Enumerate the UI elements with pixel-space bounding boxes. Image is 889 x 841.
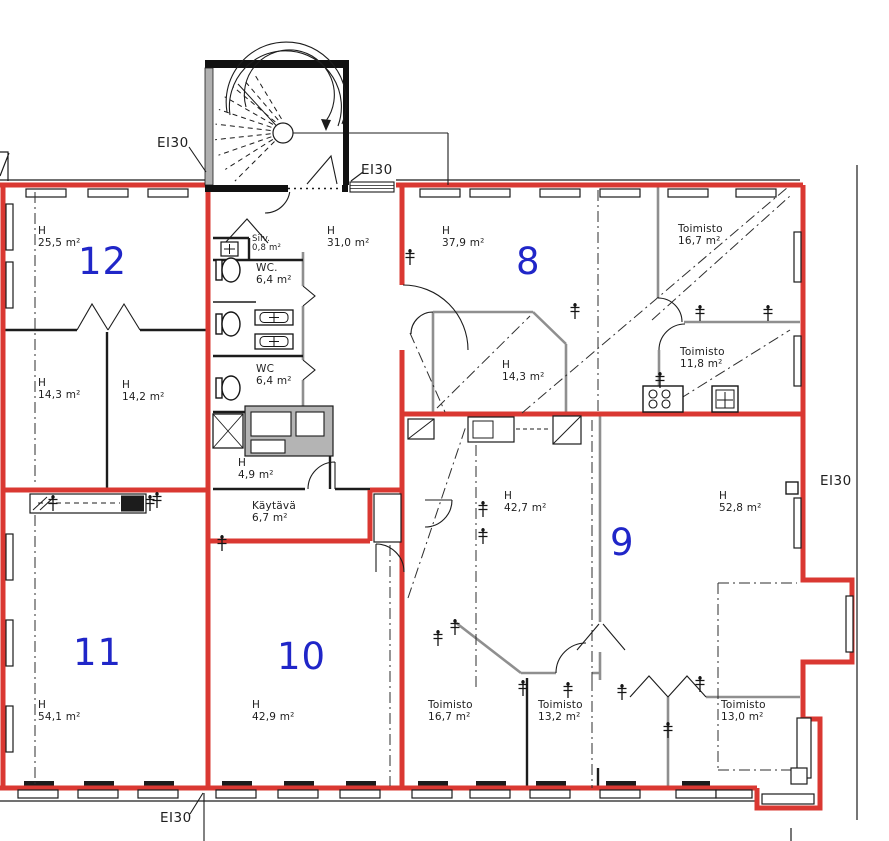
room-area-label: Toimisto13,0 m²	[721, 700, 766, 723]
room-number-10: 10	[277, 638, 326, 676]
room-area-label: WC.6,4 m²	[256, 263, 292, 286]
door-swings	[77, 156, 706, 697]
room-number-12: 12	[78, 243, 127, 281]
room-area-label: H31,0 m²	[327, 226, 370, 249]
room-area-label: Käytävä6,7 m²	[252, 501, 296, 524]
fire-rating-label: EI30	[820, 474, 852, 488]
room-number-9: 9	[610, 524, 635, 562]
fixture-symbols	[49, 249, 773, 738]
room-area-label: Toimisto16,7 m²	[678, 224, 723, 247]
room-area-label: H42,7 m²	[504, 491, 547, 514]
fire-rating-label: EI30	[160, 811, 192, 825]
floor-plan: 12 8 9 10 11 H25,5 m² H14,3 m² H14,2 m² …	[0, 0, 889, 841]
room-area-label: Toimisto16,7 m²	[428, 700, 473, 723]
gray-partitions	[303, 185, 800, 788]
spiral-staircase	[205, 42, 448, 192]
room-number-8: 8	[516, 243, 541, 281]
room-area-label: H25,5 m²	[38, 226, 81, 249]
room-area-label: WC6,4 m²	[256, 364, 292, 387]
room-area-label: H4,9 m²	[238, 458, 274, 481]
room-area-label: Toimisto13,2 m²	[538, 700, 583, 723]
room-area-label: H52,8 m²	[719, 491, 762, 514]
fire-rating-label: EI30	[157, 136, 189, 150]
room-number-11: 11	[73, 634, 122, 672]
room-area-label: Toimisto11,8 m²	[680, 347, 725, 370]
room-area-label: H54,1 m²	[38, 700, 81, 723]
fire-rating-label: EI30	[361, 163, 393, 177]
room-area-label: H37,9 m²	[442, 226, 485, 249]
room-area-label: H14,3 m²	[502, 360, 545, 383]
room-area-label: H42,9 m²	[252, 700, 295, 723]
room-area-label: Siiv.0,8 m²	[252, 235, 281, 253]
room-area-label: H14,2 m²	[122, 380, 165, 403]
room-area-label: H14,3 m²	[38, 378, 81, 401]
